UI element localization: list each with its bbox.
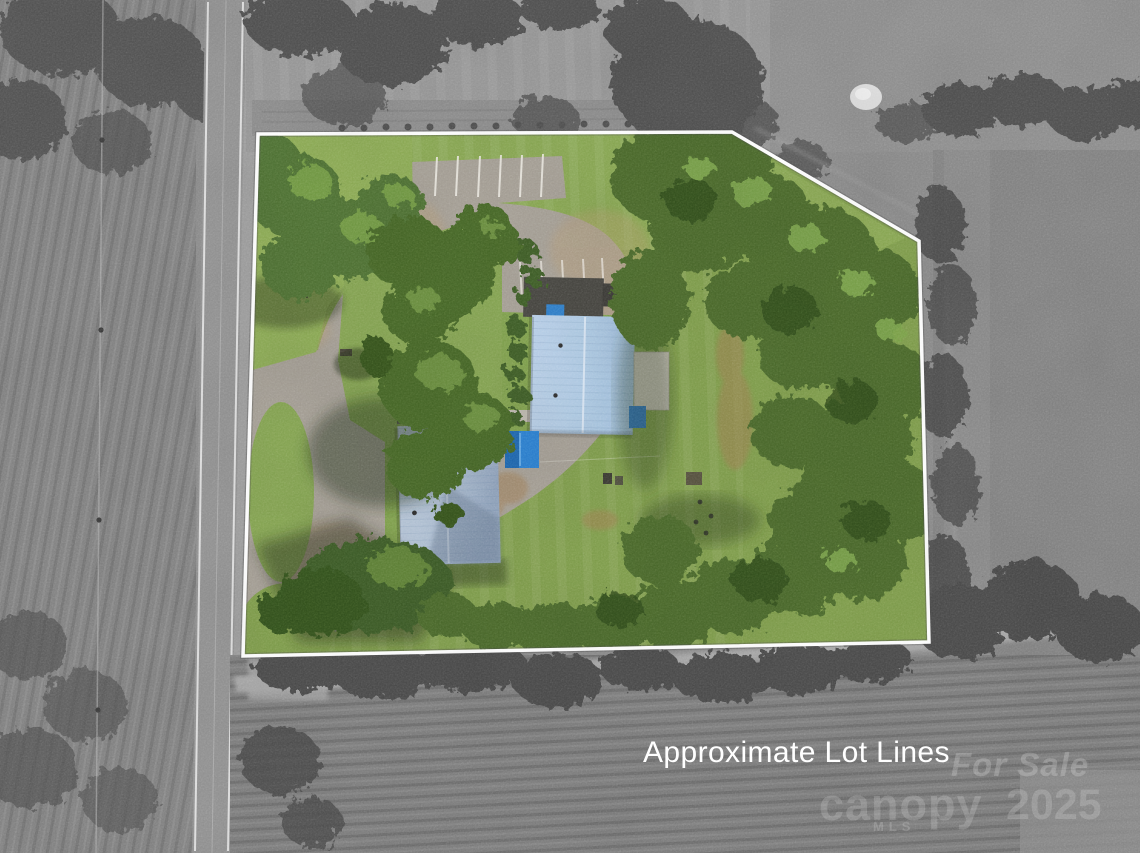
watermark-year: 2025 xyxy=(1006,781,1102,830)
watermark-brand-mls: MLS xyxy=(873,819,915,834)
aerial-scene xyxy=(0,0,1140,853)
tonal-mottle xyxy=(0,0,1140,853)
aerial-photo-screenshot: Approximate Lot Lines For Sale canopy ML… xyxy=(0,0,1140,853)
approximate-lot-lines-label: Approximate Lot Lines xyxy=(643,736,950,770)
